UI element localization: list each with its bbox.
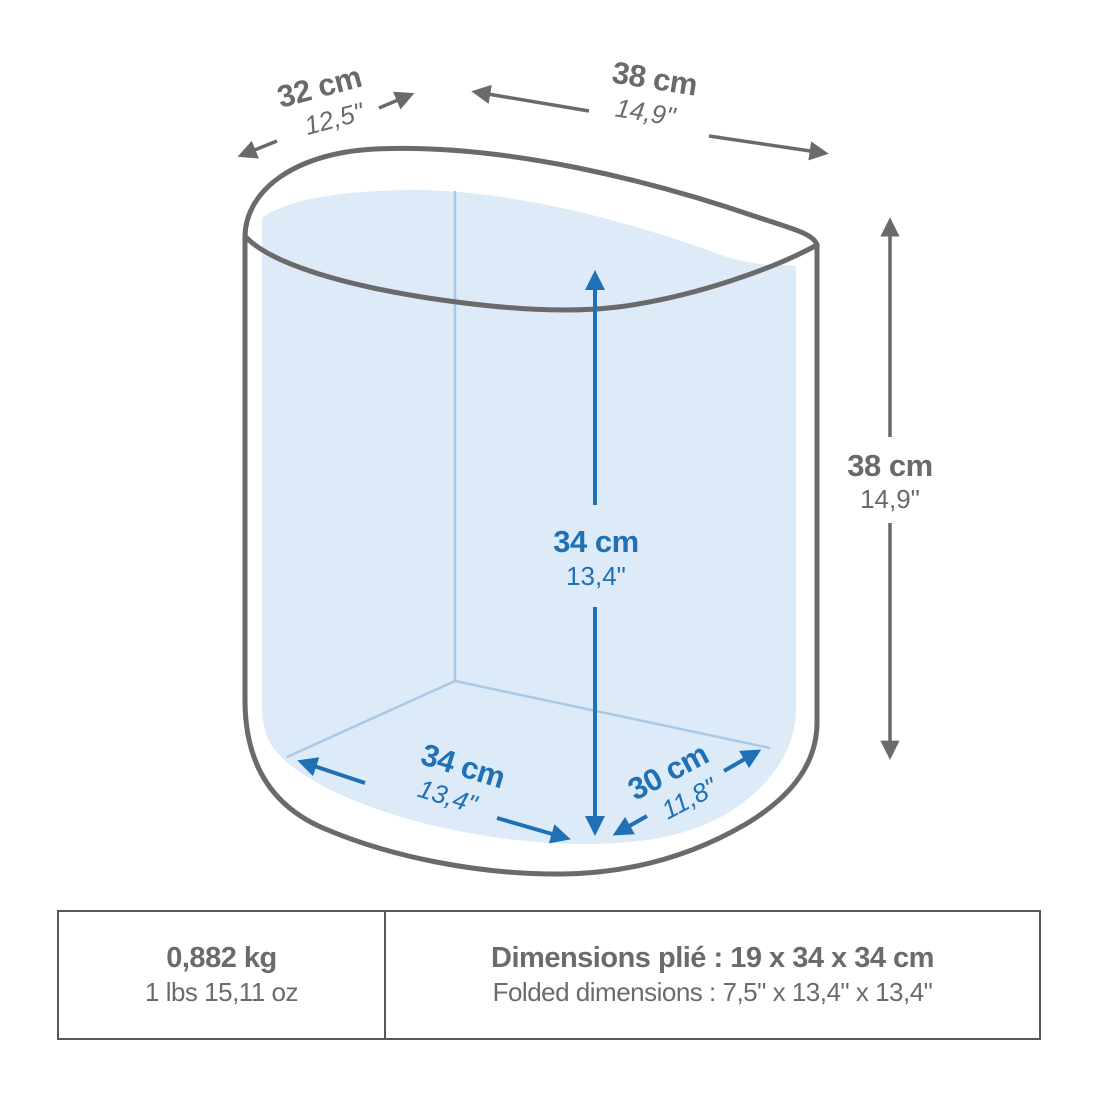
product-dimensions-figure: 32 cm 12,5" 38 cm 14,9" 38 cm 14,9" 34 c… — [0, 0, 1100, 1100]
weight-cell: 0,882 kg 1 lbs 15,11 oz — [59, 912, 386, 1038]
weight-imperial: 1 lbs 15,11 oz — [145, 978, 298, 1008]
arrow-top-width-left — [476, 92, 589, 111]
label-outer-height: 38 cm 14,9" — [847, 448, 932, 514]
label-inner-height-inch: 13,4" — [566, 561, 626, 591]
arrow-top-width-right — [709, 136, 824, 153]
label-inner-height-cm: 34 cm — [553, 524, 638, 559]
label-outer-height-cm: 38 cm — [847, 448, 932, 483]
info-table: 0,882 kg 1 lbs 15,11 oz Dimensions plié … — [57, 910, 1041, 1040]
arrow-top-depth-left — [242, 141, 277, 155]
label-top-depth: 32 cm 12,5" — [274, 59, 374, 146]
folded-dimensions-metric: Dimensions plié : 19 x 34 x 34 cm — [491, 942, 934, 975]
arrow-top-depth-right — [379, 95, 410, 108]
folded-dimensions-imperial: Folded dimensions : 7,5" x 13,4" x 13,4" — [493, 978, 933, 1008]
folded-dimensions-cell: Dimensions plié : 19 x 34 x 34 cm Folded… — [386, 912, 1039, 1038]
label-inner-height: 34 cm 13,4" — [553, 524, 638, 591]
container-diagram: 32 cm 12,5" 38 cm 14,9" 38 cm 14,9" 34 c… — [0, 0, 1100, 905]
label-outer-height-inch: 14,9" — [860, 484, 920, 514]
label-top-width: 38 cm 14,9" — [605, 55, 700, 135]
weight-metric: 0,882 kg — [166, 942, 276, 975]
